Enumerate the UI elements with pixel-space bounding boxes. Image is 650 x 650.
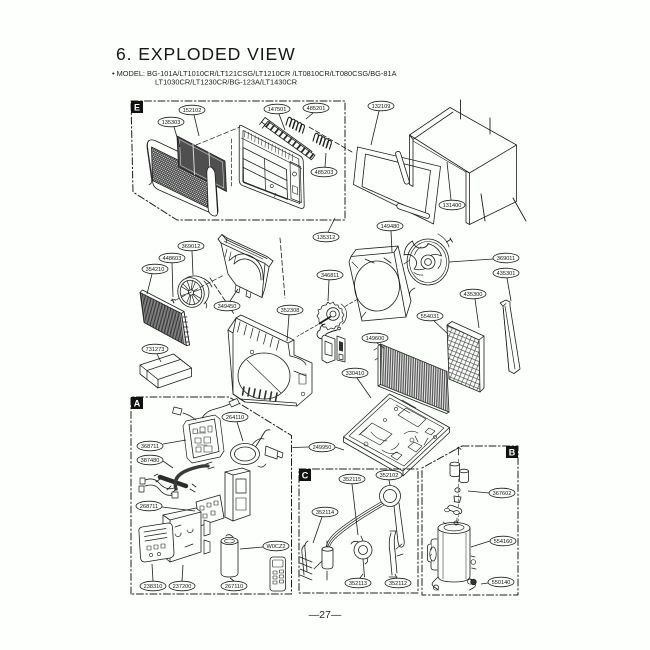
svg-text:554031: 554031 <box>421 314 440 320</box>
svg-text:352308: 352308 <box>281 308 300 314</box>
svg-text:435300: 435300 <box>464 292 483 298</box>
svg-text:352102: 352102 <box>380 473 399 479</box>
svg-text:238310: 238310 <box>144 584 163 590</box>
svg-text:550140: 550140 <box>492 580 511 586</box>
svg-text:369012: 369012 <box>182 244 201 250</box>
svg-text:152102: 152102 <box>183 108 202 114</box>
svg-text:135303: 135303 <box>162 120 181 126</box>
svg-text:352113: 352113 <box>349 581 367 587</box>
svg-text:369011: 369011 <box>497 256 515 262</box>
svg-text:E: E <box>134 103 140 113</box>
svg-text:C: C <box>302 471 309 481</box>
svg-text:330410: 330410 <box>346 371 365 377</box>
svg-text:6. EXPLODED VIEW: 6. EXPLODED VIEW <box>116 44 296 64</box>
svg-text:149480: 149480 <box>381 224 400 230</box>
svg-text:485201: 485201 <box>307 106 326 112</box>
svg-text:354210: 354210 <box>146 267 165 273</box>
svg-text:264110: 264110 <box>226 415 244 421</box>
svg-text:368711: 368711 <box>141 444 159 450</box>
svg-text:LT1030CR/LT1230CR/BG-123A/LT14: LT1030CR/LT1230CR/BG-123A/LT1430CR <box>155 78 297 87</box>
svg-text:346811: 346811 <box>321 273 339 279</box>
svg-text:147501: 147501 <box>268 107 287 113</box>
svg-text:—27—: —27— <box>309 609 342 621</box>
svg-text:237200: 237200 <box>173 584 192 590</box>
svg-text:132109: 132109 <box>372 104 391 110</box>
svg-text:485203: 485203 <box>315 170 334 176</box>
svg-text:731273: 731273 <box>146 347 165 353</box>
svg-text:352115: 352115 <box>343 477 361 483</box>
svg-text:448603: 448603 <box>163 256 182 262</box>
svg-text:267110: 267110 <box>225 584 243 590</box>
svg-text:554160: 554160 <box>494 539 513 545</box>
svg-text:B: B <box>509 448 516 458</box>
svg-text:131400: 131400 <box>443 203 462 209</box>
svg-text:268711: 268711 <box>140 504 158 510</box>
svg-text:387480: 387480 <box>141 458 160 464</box>
svg-text:349450: 349450 <box>218 304 237 310</box>
svg-text:352112: 352112 <box>389 581 407 587</box>
svg-text:249950: 249950 <box>313 445 332 451</box>
svg-text:367602: 367602 <box>493 491 512 497</box>
svg-text:435301: 435301 <box>497 271 516 277</box>
svg-text:135312: 135312 <box>317 235 336 241</box>
svg-text:W0CZ2: W0CZ2 <box>267 544 286 550</box>
svg-text:352114: 352114 <box>316 510 334 516</box>
svg-text:149600: 149600 <box>366 336 385 342</box>
svg-text:A: A <box>134 399 141 409</box>
